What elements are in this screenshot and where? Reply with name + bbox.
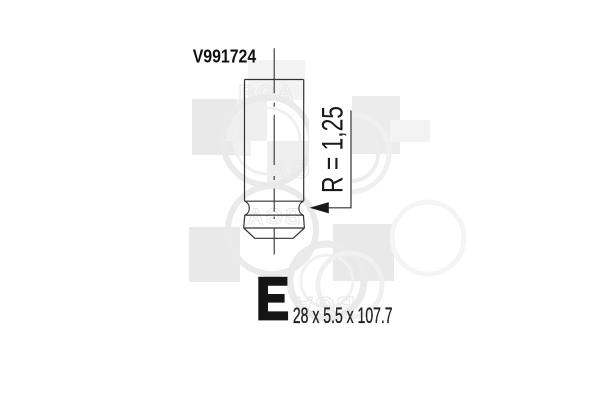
svg-text:V991724: V991724 bbox=[193, 46, 257, 67]
svg-text:28 x 5.5 x 107.7: 28 x 5.5 x 107.7 bbox=[293, 303, 393, 328]
svg-text:BGA: BGA bbox=[246, 204, 301, 229]
svg-text:R = 1,25: R = 1,25 bbox=[317, 106, 350, 193]
svg-text:BGA: BGA bbox=[238, 80, 295, 106]
